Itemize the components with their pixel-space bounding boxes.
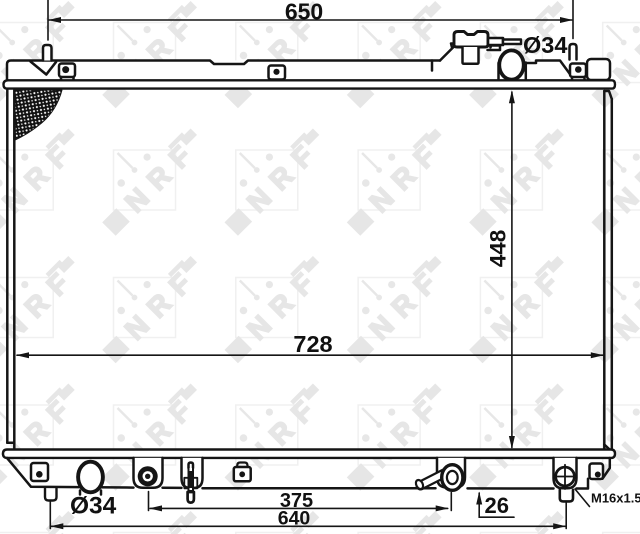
- svg-text:Ø34: Ø34: [70, 493, 117, 520]
- svg-text:M16x1.5: M16x1.5: [591, 491, 640, 506]
- svg-text:448: 448: [486, 230, 511, 268]
- svg-text:650: 650: [285, 0, 323, 25]
- svg-text:Ø34: Ø34: [523, 32, 567, 58]
- svg-text:640: 640: [278, 508, 311, 530]
- svg-text:26: 26: [485, 493, 509, 518]
- svg-text:728: 728: [293, 331, 332, 357]
